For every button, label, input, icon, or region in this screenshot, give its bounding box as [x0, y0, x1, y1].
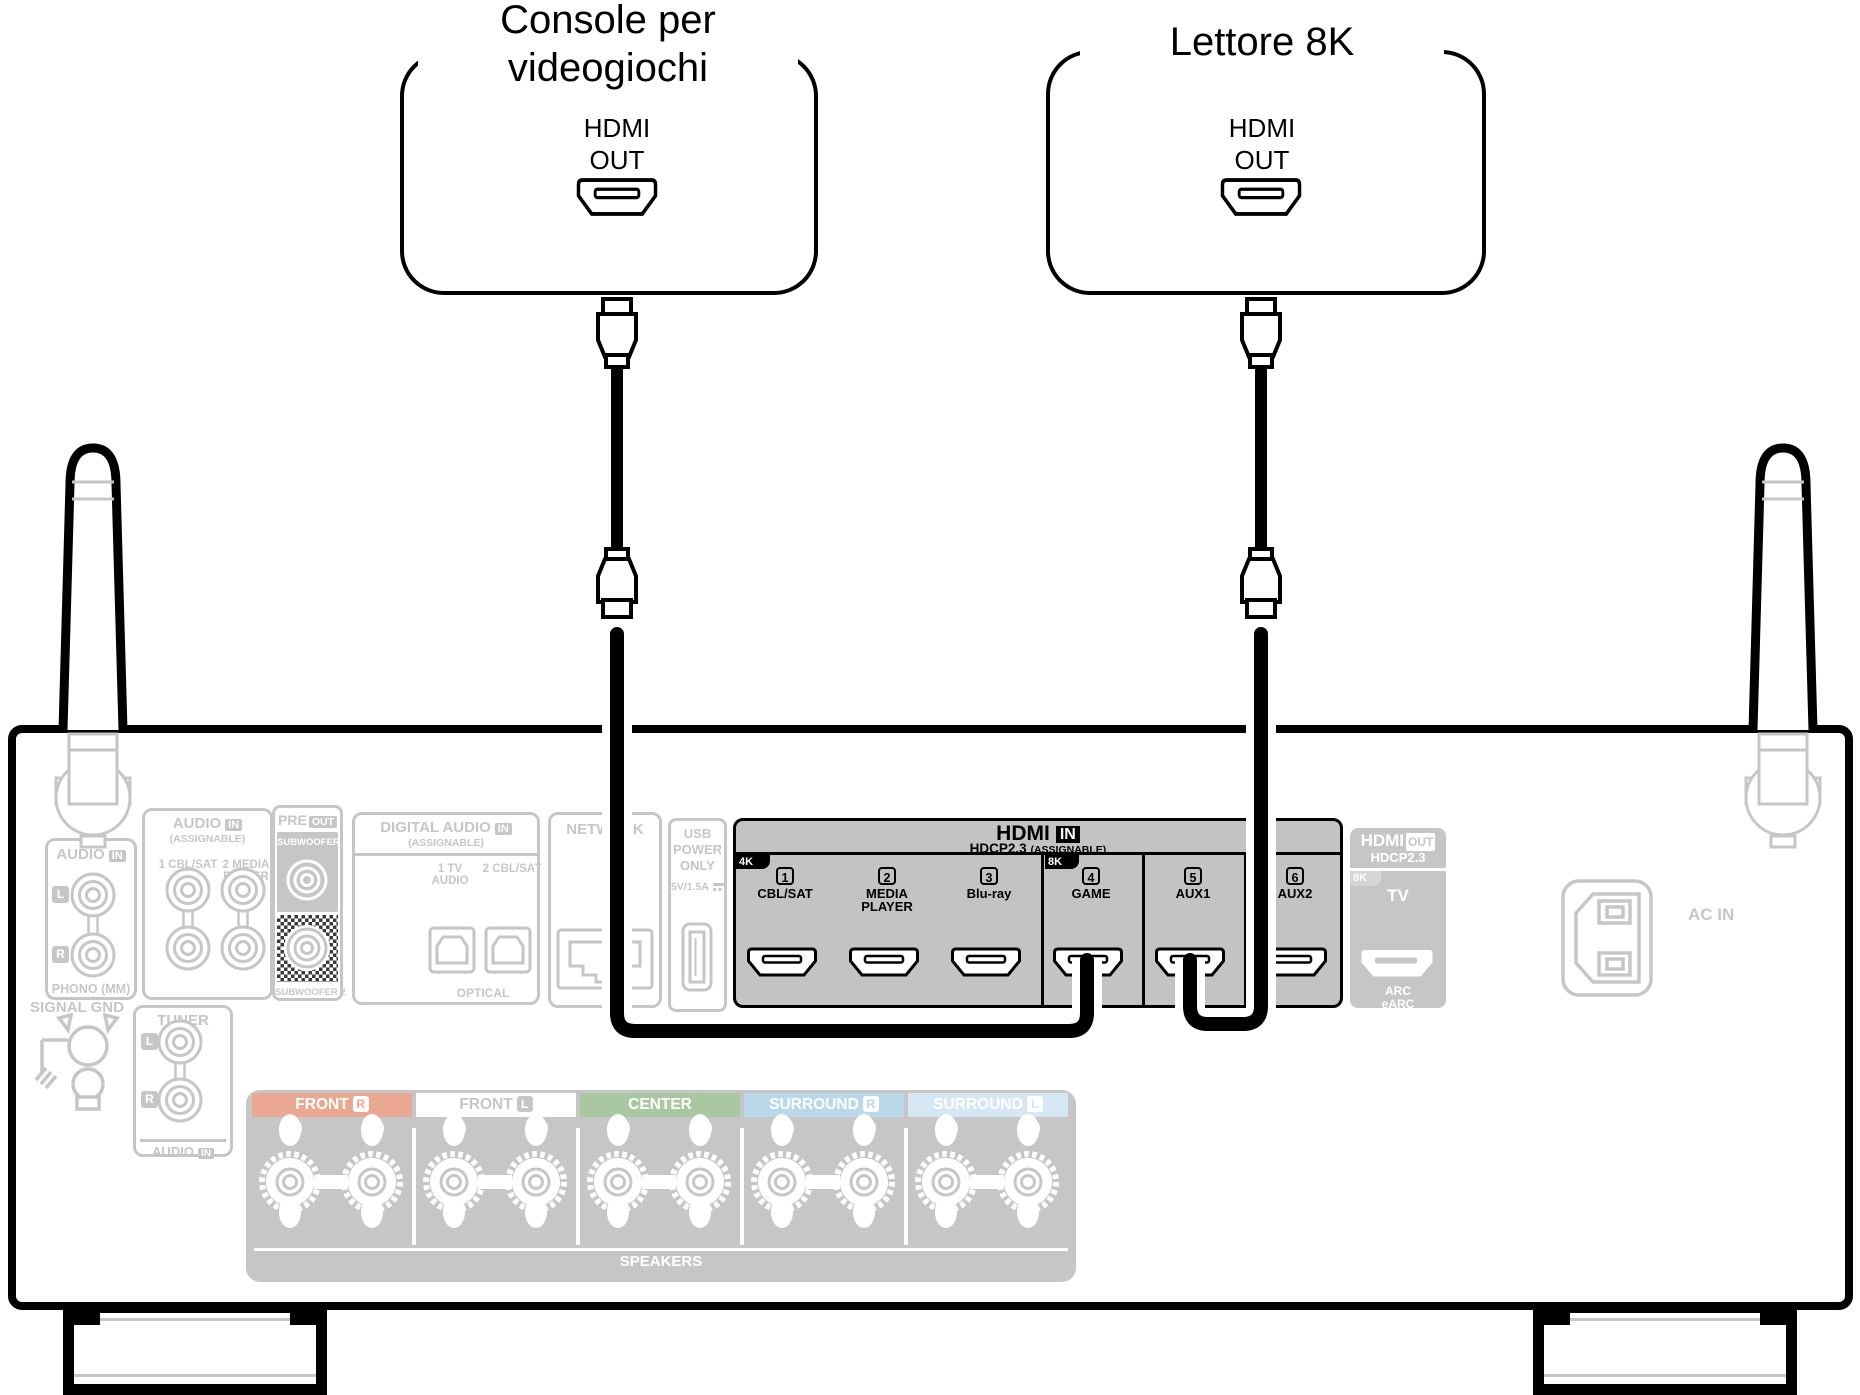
phono-left-badge: L [52, 886, 69, 903]
optical2-label: 2 CBL/SAT [477, 863, 547, 875]
surround-l-side-badge: L [1027, 1096, 1043, 1112]
post-minus-icon: − [361, 1117, 384, 1140]
center-label: CENTER [628, 1096, 692, 1113]
surround-l-label: SURROUND [933, 1096, 1023, 1113]
digital-audio-header: DIGITAL AUDIOIN [355, 819, 537, 836]
hdmi-out-section: HDMIOUT HDCP2.3 8K TV ARC eARC [1350, 828, 1446, 1008]
digital-audio-divider [355, 853, 537, 856]
front-r-side-badge: R [353, 1096, 369, 1112]
tuner-header: TUNER [136, 1012, 230, 1029]
phono-right-badge: R [52, 946, 69, 963]
hdmi-input-aux1: 5 AUX1 [1143, 821, 1243, 1005]
speaker-band-front-l: FRONTL [416, 1093, 576, 1117]
audio-col-media-line2: PLAYER [223, 871, 269, 883]
subwoofer1-panel: SUBWOOFER 1 [277, 832, 338, 912]
input3-label: Blu-ray [939, 887, 1039, 900]
network-block: NETWORK [548, 812, 662, 1008]
audio-assignable-label: AUDIO [173, 815, 221, 832]
console-out-label: OUT [517, 145, 717, 175]
usb-label-3: ONLY [680, 858, 715, 873]
phono-caption: PHONO (MM) [42, 982, 140, 996]
digital-audio-in-badge: IN [495, 823, 512, 835]
console-title-line2: videogiochi [508, 46, 708, 90]
subwoofer2-panel [277, 915, 338, 982]
earc-text: eARC [1382, 997, 1415, 1011]
hdmi-out-8k-tab: 8K [1350, 871, 1381, 886]
speakers-footer-label: SPEAKERS [246, 1253, 1076, 1270]
speaker-divider-3 [740, 1128, 744, 1245]
player-out-label: OUT [1162, 145, 1362, 175]
hdmi-out-badge: OUT [1406, 833, 1435, 851]
usb-header: USB POWER ONLY [671, 826, 724, 874]
hdmi-out-title-text: HDMI [1361, 831, 1404, 850]
usb-label-1: USB [684, 826, 711, 841]
hdmi-input-cbl-sat: 1 CBL/SAT [735, 821, 835, 1005]
divider-aux1-aux2 [1244, 854, 1247, 1005]
tuner-footer-label: AUDIO [152, 1144, 194, 1159]
phono-in-badge: IN [109, 850, 126, 862]
input1-label: CBL/SAT [735, 887, 835, 900]
hdmi-out-hdcp: HDCP2.3 [1350, 850, 1446, 865]
console-title-line1: Console per [500, 0, 716, 42]
input4-number: 4 [1082, 867, 1100, 885]
audio-assignable-in-badge: IN [225, 819, 242, 831]
speakers-footer-line [254, 1248, 1068, 1251]
speaker-band-center: CENTER [580, 1093, 740, 1117]
digital-audio-label: DIGITAL AUDIO [380, 819, 491, 836]
audio-assignable-sub: (ASSIGNABLE) [145, 833, 270, 845]
game-console-title: Console per videogiochi [418, 0, 798, 92]
pre-out-label: PRE [278, 812, 307, 828]
front-l-label: FRONT [459, 1096, 512, 1113]
optical1-line1: 1 TV [438, 863, 462, 875]
subwoofer2-label: SUBWOOFER 2 [275, 987, 340, 998]
speaker-divider-2 [576, 1128, 580, 1245]
tuner-divider [140, 1139, 226, 1142]
player-hdmi-label: HDMI [1162, 113, 1362, 143]
post-plus-icon: + [935, 1117, 958, 1140]
tuner-footer: AUDIOIN [136, 1144, 230, 1159]
tuner-footer-in-badge: IN [198, 1148, 214, 1159]
post-plus-icon: + [443, 1117, 466, 1140]
hdmi-input-bluray: 3 Blu-ray [939, 821, 1039, 1005]
post-minus-icon: − [853, 1117, 876, 1140]
hdmi-out-title: HDMIOUT [1350, 832, 1446, 851]
hdmi-connection-diagram: AUDIOIN PHONO (MM) L R SIGNAL GND AUDIOI… [0, 0, 1860, 1395]
usb-block: USB POWER ONLY 5V/1.5A [668, 818, 727, 1012]
input4-label: GAME [1041, 887, 1141, 900]
dc-symbol-icon [713, 882, 727, 890]
phono-audio-in-block: AUDIOIN PHONO (MM) [45, 838, 137, 1000]
tab-4k: 4K [736, 855, 770, 869]
front-r-label: FRONT [295, 1096, 348, 1113]
digital-audio-sub: (ASSIGNABLE) [355, 837, 537, 849]
surround-r-side-badge: R [863, 1096, 879, 1112]
ac-in-label: AC IN [1688, 905, 1778, 925]
post-plus-icon: + [771, 1117, 794, 1140]
audio-assignable-header: AUDIOIN [145, 815, 270, 832]
tab-8k: 8K [1045, 855, 1079, 869]
surround-r-label: SURROUND [769, 1096, 859, 1113]
input5-label: AUX1 [1143, 887, 1243, 900]
hdmi-input-game: 4 GAME [1041, 821, 1141, 1005]
audio-in-assignable-block: AUDIOIN (ASSIGNABLE) 1 CBL/SAT 2 MEDIA P… [142, 808, 273, 1000]
input2-number: 2 [878, 867, 896, 885]
speaker-band-surround-r: SURROUNDR [744, 1093, 904, 1117]
hdmi-out-arc-label: ARC eARC [1350, 985, 1446, 1011]
hdmi-cable-plugs-console [598, 299, 636, 617]
audio-col-media-line1: 2 MEDIA [223, 859, 270, 871]
subwoofer1-label: SUBWOOFER 1 [277, 837, 338, 848]
input6-label: AUX2 [1245, 887, 1345, 900]
speaker-band-surround-l: SURROUNDL [908, 1093, 1068, 1117]
usb-rating-text: 5V/1.5A [671, 881, 709, 893]
hdmi-in-section: HDMIIN HDCP2.3 (ASSIGNABLE) 4K 8K 1 CBL/… [733, 818, 1343, 1008]
front-l-side-badge: L [517, 1096, 533, 1112]
divider-4k-8k [1041, 854, 1044, 1005]
network-header: NETWORK [551, 821, 659, 838]
speaker-band-front-r: FRONTR [252, 1093, 412, 1117]
post-plus-icon: + [279, 1117, 302, 1140]
tuner-right-badge: R [141, 1091, 158, 1108]
input1-number: 1 [776, 867, 794, 885]
signal-gnd-label: SIGNAL GND [22, 999, 132, 1016]
optical1-label: 1 TV AUDIO [417, 863, 483, 887]
console-hdmi-label: HDMI [517, 113, 717, 143]
input3-number: 3 [980, 867, 998, 885]
input6-number: 6 [1286, 867, 1304, 885]
audio-col-media: 2 MEDIA PLAYER [215, 859, 277, 883]
tuner-left-badge: L [141, 1033, 158, 1050]
tuner-block: TUNER AUDIOIN [133, 1005, 233, 1157]
receiver-foot-left [63, 1302, 327, 1395]
speaker-divider-1 [412, 1128, 416, 1245]
speaker-divider-4 [904, 1128, 908, 1245]
pre-out-out-badge: OUT [309, 816, 337, 828]
hdmi-input-aux2: 6 AUX2 [1245, 821, 1345, 1005]
divider-game-aux1 [1142, 854, 1145, 1005]
input5-number: 5 [1184, 867, 1202, 885]
phono-header-label: AUDIO [56, 846, 104, 863]
phono-header: AUDIOIN [48, 846, 134, 863]
usb-label-2: POWER [673, 842, 722, 857]
optical1-line2: AUDIO [431, 875, 468, 887]
optical-caption: OPTICAL [433, 986, 533, 1000]
usb-rating: 5V/1.5A [671, 881, 724, 893]
arc-text: ARC [1385, 984, 1411, 998]
post-minus-icon: − [1017, 1117, 1040, 1140]
hdmi-cable-plugs-player [1242, 299, 1280, 617]
digital-audio-block: DIGITAL AUDIOIN (ASSIGNABLE) 1 TV AUDIO … [352, 812, 540, 1005]
hdmi-out-tv-label: TV [1350, 886, 1446, 906]
hdmi-input-media-player: 2 MEDIA PLAYER [837, 821, 937, 1005]
post-minus-icon: − [525, 1117, 548, 1140]
pre-out-header: PREOUT [275, 812, 340, 828]
post-plus-icon: + [607, 1117, 630, 1140]
input2-label-line2: PLAYER [837, 900, 937, 913]
player-8k-title: Lettore 8K [1080, 14, 1444, 70]
receiver-foot-right [1533, 1302, 1797, 1395]
post-minus-icon: − [689, 1117, 712, 1140]
